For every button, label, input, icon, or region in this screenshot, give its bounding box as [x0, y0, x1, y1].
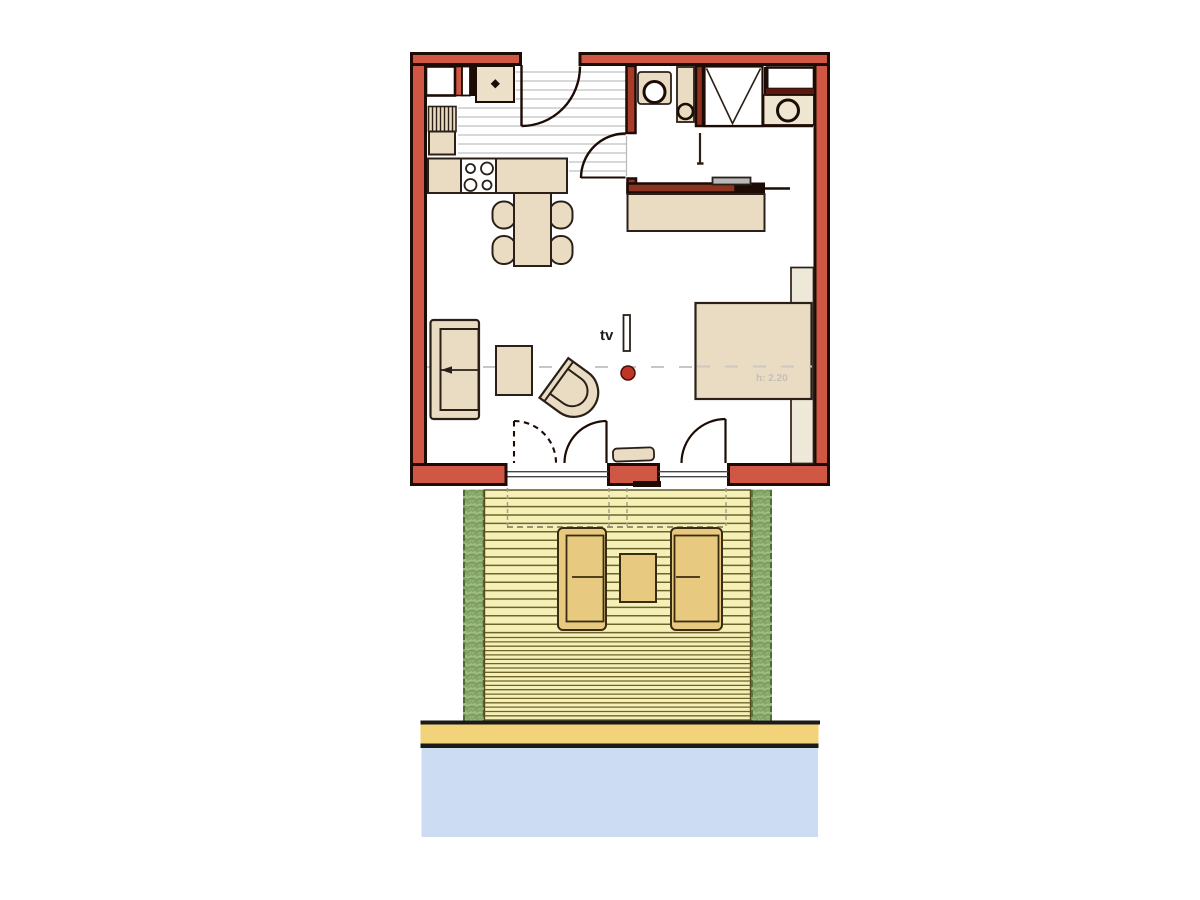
svg-text:tv: tv: [600, 327, 614, 344]
svg-text:h: 2.20: h: 2.20: [756, 373, 788, 384]
